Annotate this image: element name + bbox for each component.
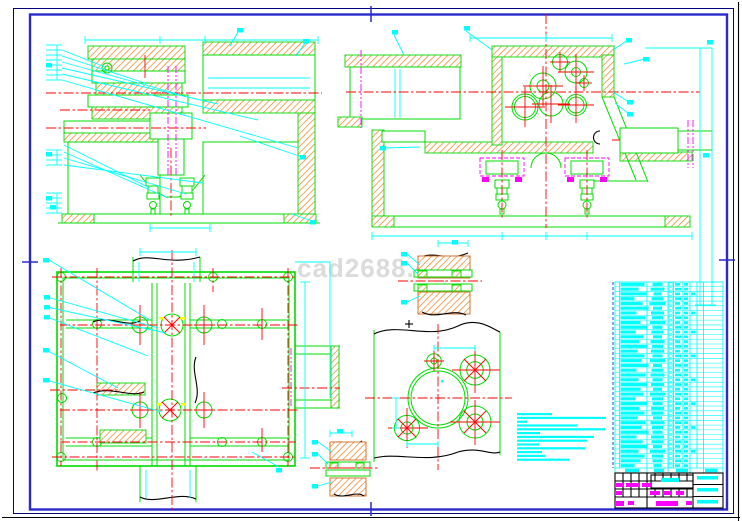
parts-cell-box <box>669 393 672 396</box>
parts-cell-name <box>621 426 642 429</box>
note-line <box>517 455 545 457</box>
parts-cell-a <box>675 321 680 324</box>
parts-cell-box <box>669 412 672 415</box>
dim-text-marker <box>337 429 343 434</box>
parts-list-table <box>613 282 723 473</box>
parts-cell-name <box>621 464 635 467</box>
parts-cell-a <box>675 402 681 405</box>
view-longitudinal-section <box>46 32 322 232</box>
parts-cell-qty <box>653 388 662 391</box>
parts-cell-b <box>684 326 688 329</box>
note-line <box>517 413 552 415</box>
parts-cell-qty <box>651 340 665 343</box>
title-text-magenta <box>626 483 640 487</box>
parts-cell-box <box>669 302 672 305</box>
parts-cell-qty <box>653 378 663 381</box>
parts-cell-name <box>621 331 636 334</box>
parts-cell-a <box>675 326 681 329</box>
parts-cell-a <box>675 397 680 400</box>
dim-text-marker <box>303 39 309 44</box>
title-text-magenta <box>642 483 652 487</box>
dim-text-marker <box>44 295 50 300</box>
dim-text-marker <box>401 252 407 257</box>
parts-cell-a <box>675 388 680 391</box>
parts-cell-qty <box>651 435 664 438</box>
parts-cell-name <box>621 345 647 348</box>
parts-cell-name <box>621 321 641 324</box>
note-line <box>517 440 587 442</box>
note-line <box>517 424 577 426</box>
parts-cell-qty <box>652 412 664 415</box>
parts-cell-name <box>621 416 638 419</box>
note-line <box>517 459 569 461</box>
parts-cell-name <box>621 292 647 295</box>
parts-cell-b <box>684 297 688 300</box>
parts-cell-qty <box>651 373 665 376</box>
parts-cell-name <box>621 412 645 415</box>
parts-cell-box <box>669 450 672 453</box>
parts-cell-qty <box>653 335 662 338</box>
parts-cell-box <box>669 331 672 334</box>
note-line <box>517 436 594 438</box>
dim-text-marker <box>392 30 398 35</box>
parts-cell-b <box>684 393 688 396</box>
view-flange-face <box>365 320 512 470</box>
parts-cell-a <box>675 302 680 305</box>
parts-cell-name <box>621 354 645 357</box>
parts-cell-qty <box>653 431 663 434</box>
bolt-foot-left <box>480 150 524 218</box>
dim-text-marker <box>44 305 50 310</box>
parts-cell-a <box>675 331 680 334</box>
parts-cell-box <box>669 288 672 291</box>
title-text-magenta <box>616 501 624 506</box>
parts-cell-a <box>675 283 680 286</box>
parts-cell-box <box>669 307 672 310</box>
parts-cell-a <box>675 459 681 462</box>
parts-cell-a <box>675 335 681 338</box>
dim-text-marker <box>43 348 49 353</box>
parts-cell-box <box>669 426 672 429</box>
parts-cell-b <box>684 431 688 434</box>
title-text-magenta <box>686 501 692 505</box>
parts-cell-a <box>675 393 681 396</box>
parts-cell-b <box>684 388 688 391</box>
detail-b-bearing <box>310 430 380 496</box>
parts-cell-a <box>675 359 680 362</box>
parts-cell-qty <box>653 307 662 310</box>
parts-cell-qty <box>652 297 664 300</box>
dim-text-marker <box>626 38 632 43</box>
title-text-magenta <box>616 483 624 487</box>
parts-cell-qty <box>650 302 666 305</box>
dim-text-marker <box>703 153 709 158</box>
cad-drawing-canvas: cad2688.cu <box>0 0 742 521</box>
parts-cell-box <box>669 350 672 353</box>
parts-cell-box <box>669 421 672 424</box>
parts-cell-a <box>675 316 681 319</box>
parts-cell-qty <box>651 350 664 353</box>
parts-cell-qty <box>653 416 662 419</box>
parts-cell-name <box>621 455 645 458</box>
parts-cell-a <box>675 312 680 315</box>
parts-cell-a <box>675 288 681 291</box>
dim-text-marker <box>46 63 52 68</box>
parts-cell-b <box>684 350 688 353</box>
dim-text-marker <box>312 484 318 489</box>
parts-cell-name <box>621 450 639 453</box>
parts-cell-c <box>691 355 695 358</box>
title-text-cyan <box>697 500 718 504</box>
parts-cell-box <box>669 445 672 448</box>
parts-cell-qty <box>654 464 662 467</box>
parts-cell-b <box>684 417 688 420</box>
parts-cell-name <box>621 302 643 305</box>
parts-cell-name <box>621 340 640 343</box>
dim-text-marker <box>401 300 407 305</box>
parts-cell-qty <box>654 292 662 295</box>
parts-cell-b <box>684 293 688 296</box>
parts-cell-a <box>675 436 680 439</box>
parts-cell-qty <box>652 316 663 319</box>
parts-cell-a <box>675 293 680 296</box>
parts-cell-box <box>669 321 672 324</box>
parts-cell-a <box>675 421 681 424</box>
title-text-magenta <box>664 491 672 495</box>
parts-cell-a <box>675 412 681 415</box>
parts-cell-name <box>621 364 649 367</box>
parts-header-cell <box>676 469 688 472</box>
parts-cell-name <box>621 283 645 286</box>
parts-cell-box <box>669 397 672 400</box>
title-text-cyan <box>697 476 718 480</box>
parts-cell-box <box>669 455 672 458</box>
notes-block <box>517 413 606 461</box>
parts-cell-a <box>675 378 680 381</box>
dim-text-marker <box>312 440 318 445</box>
parts-cell-a <box>675 445 680 448</box>
parts-cell-box <box>669 335 672 338</box>
parts-cell-qty <box>652 369 664 372</box>
parts-cell-qty <box>651 383 664 386</box>
parts-cell-c <box>691 450 695 453</box>
parts-cell-b <box>684 383 688 386</box>
parts-cell-box <box>669 374 672 377</box>
parts-cell-qty <box>651 311 664 314</box>
parts-cell-qty <box>653 459 663 462</box>
parts-cell-name <box>621 445 647 448</box>
parts-cell-box <box>669 364 672 367</box>
parts-cell-box <box>669 340 672 343</box>
parts-cell-b <box>684 450 688 453</box>
parts-cell-b <box>684 331 688 334</box>
dim-text-marker <box>43 258 49 263</box>
parts-cell-qty <box>652 397 663 400</box>
parts-cell-box <box>669 440 672 443</box>
parts-cell-box <box>669 316 672 319</box>
dim-text-marker <box>43 378 49 383</box>
parts-cell-a <box>675 450 681 453</box>
parts-cell-a <box>675 426 680 429</box>
title-text-magenta <box>656 501 678 506</box>
parts-cell-a <box>675 464 680 467</box>
parts-cell-b <box>684 455 688 458</box>
plan-centerlines <box>50 250 300 512</box>
parts-cell-b <box>684 464 688 467</box>
dim-text-marker <box>310 220 316 225</box>
parts-cell-qty <box>650 393 665 396</box>
parts-cell-qty <box>652 331 664 334</box>
note-line <box>517 432 540 434</box>
parts-cell-box <box>669 388 672 391</box>
parts-cell-name <box>621 435 637 438</box>
parts-cell-qty <box>653 283 663 286</box>
dim-text-marker <box>401 261 407 266</box>
cad-drawing: cad2688.cu <box>0 0 742 521</box>
parts-cell-b <box>684 364 688 367</box>
parts-header-cell <box>705 469 717 472</box>
parts-cell-a <box>675 307 681 310</box>
parts-cell-c <box>691 312 695 315</box>
parts-cell-a <box>675 345 681 348</box>
parts-cell-name <box>621 311 637 314</box>
parts-cell-box <box>669 292 672 295</box>
parts-cell-qty <box>650 450 665 453</box>
parts-cell-name <box>621 397 636 400</box>
parts-cell-qty <box>650 359 665 362</box>
parts-header-cell <box>625 469 639 472</box>
parts-cell-qty <box>653 326 663 329</box>
parts-cell-box <box>669 283 672 286</box>
parts-cell-b <box>684 335 688 338</box>
parts-cell-a <box>675 407 680 410</box>
parts-cell-b <box>684 436 688 439</box>
view-plan <box>46 248 340 512</box>
parts-cell-b <box>684 321 688 324</box>
dim-text-marker <box>452 240 458 245</box>
dim-text-marker <box>380 146 386 151</box>
title-text-cyan <box>697 488 718 492</box>
parts-cell-b <box>684 359 688 362</box>
parts-cell-qty <box>653 364 662 367</box>
parts-cell-qty <box>652 440 664 443</box>
parts-cell-qty <box>650 321 665 324</box>
parts-cell-name <box>621 440 643 443</box>
parts-list-rows <box>615 283 723 472</box>
note-line <box>517 451 542 453</box>
parts-cell-name <box>621 393 644 396</box>
parts-cell-qty <box>653 354 663 357</box>
parts-cell-b <box>684 312 688 315</box>
parts-cell-qty <box>651 421 665 424</box>
parts-cell-qty <box>652 455 663 458</box>
parts-cell-b <box>684 426 688 429</box>
parts-cell-box <box>669 312 672 315</box>
parts-cell-qty <box>651 407 664 410</box>
parts-cell-qty <box>651 288 665 291</box>
parts-cell-name <box>621 335 644 338</box>
parts-cell-a <box>675 417 680 420</box>
parts-cell-box <box>669 402 672 405</box>
parts-cell-b <box>684 340 688 343</box>
parts-cell-b <box>684 378 688 381</box>
note-line <box>517 447 585 449</box>
parts-cell-b <box>684 440 688 443</box>
parts-cell-b <box>684 402 688 405</box>
corner-bolt-holes <box>57 273 293 462</box>
parts-cell-qty <box>652 345 663 348</box>
parts-cell-a <box>675 364 681 367</box>
parts-cell-box <box>669 359 672 362</box>
parts-header-cell <box>654 469 664 472</box>
parts-cell-a <box>675 350 680 353</box>
dim-text-marker <box>312 452 318 457</box>
title-text-magenta <box>628 501 634 505</box>
parts-cell-b <box>684 283 688 286</box>
parts-cell-name <box>621 402 648 405</box>
parts-cell-b <box>684 445 688 448</box>
dim-text-marker <box>44 315 50 320</box>
parts-cell-c <box>691 402 695 405</box>
parts-cell-a <box>675 297 681 300</box>
parts-cell-name <box>621 369 637 372</box>
dim-text-marker <box>276 468 282 473</box>
parts-cell-b <box>684 374 688 377</box>
parts-cell-c <box>691 331 695 334</box>
parts-cell-box <box>669 326 672 329</box>
parts-cell-box <box>669 354 672 357</box>
parts-cell-a <box>675 355 681 358</box>
parts-cell-qty <box>652 426 663 429</box>
parts-cell-box <box>669 345 672 348</box>
note-line <box>517 421 527 423</box>
parts-cell-a <box>675 369 680 372</box>
parts-cell-b <box>684 316 688 319</box>
parts-cell-box <box>669 297 672 300</box>
parts-cell-name <box>621 288 639 291</box>
title-block <box>615 473 723 508</box>
parts-cell-box <box>669 459 672 462</box>
parts-cell-name <box>621 359 642 362</box>
parts-cell-name <box>621 383 647 386</box>
parts-cell-name <box>621 373 646 376</box>
parts-cell-name <box>621 316 646 319</box>
parts-cell-a <box>675 440 681 443</box>
parts-cell-name <box>621 307 649 310</box>
plan-leaders <box>46 248 330 467</box>
parts-cell-b <box>684 302 688 305</box>
parts-cell-b <box>684 421 688 424</box>
dim-text-marker <box>627 100 633 105</box>
parts-cell-name <box>621 407 640 410</box>
parts-cell-box <box>669 378 672 381</box>
dim-text-marker <box>50 205 56 210</box>
note-line <box>517 428 605 430</box>
parts-cell-a <box>675 431 681 434</box>
dim-text-marker <box>46 152 52 157</box>
parts-cell-qty <box>653 402 663 405</box>
dim-text-marker <box>627 112 633 117</box>
parts-cell-name <box>621 326 648 329</box>
parts-cell-box <box>669 464 672 467</box>
parts-cell-box <box>669 383 672 386</box>
parts-cell-b <box>684 369 688 372</box>
parts-cell-a <box>675 340 680 343</box>
parts-cell-b <box>684 288 688 291</box>
title-text-magenta <box>650 491 660 495</box>
parts-cell-box <box>669 431 672 434</box>
parts-cell-a <box>675 374 681 377</box>
parts-cell-b <box>684 355 688 358</box>
dim-text-marker <box>464 26 470 31</box>
parts-cell-box <box>669 369 672 372</box>
parts-cell-c <box>691 293 695 296</box>
parts-cell-name <box>621 350 638 353</box>
parts-cell-b <box>684 307 688 310</box>
parts-cell-name <box>621 378 639 381</box>
parts-cell-c <box>691 378 695 381</box>
dim-text-marker <box>237 28 243 33</box>
parts-cell-name <box>621 421 646 424</box>
dim-text-marker <box>300 155 306 160</box>
parts-cell-name <box>621 388 641 391</box>
dim-text-marker <box>707 40 713 45</box>
parts-cell-b <box>684 397 688 400</box>
bolt-foot-right <box>565 150 609 218</box>
parts-cell-a <box>675 455 680 458</box>
parts-cell-qty <box>653 445 662 448</box>
title-text-magenta <box>676 491 684 495</box>
parts-cell-box <box>669 416 672 419</box>
parts-cell-b <box>684 412 688 415</box>
parts-cell-name <box>621 431 649 434</box>
parts-cell-c <box>691 426 695 429</box>
parts-cell-b <box>684 459 688 462</box>
note-line <box>517 417 606 419</box>
note-line <box>517 443 539 445</box>
parts-cell-box <box>669 407 672 410</box>
parts-cell-a <box>675 383 681 386</box>
title-text-cyan <box>661 478 679 482</box>
parts-cell-box <box>669 436 672 439</box>
dim-text-marker <box>643 57 649 62</box>
dim-text-marker <box>46 196 52 201</box>
title-text-magenta <box>616 491 622 495</box>
parts-cell-b <box>684 345 688 348</box>
parts-cell-b <box>684 407 688 410</box>
parts-cell-name <box>621 297 635 300</box>
parts-cell-name <box>621 459 641 462</box>
